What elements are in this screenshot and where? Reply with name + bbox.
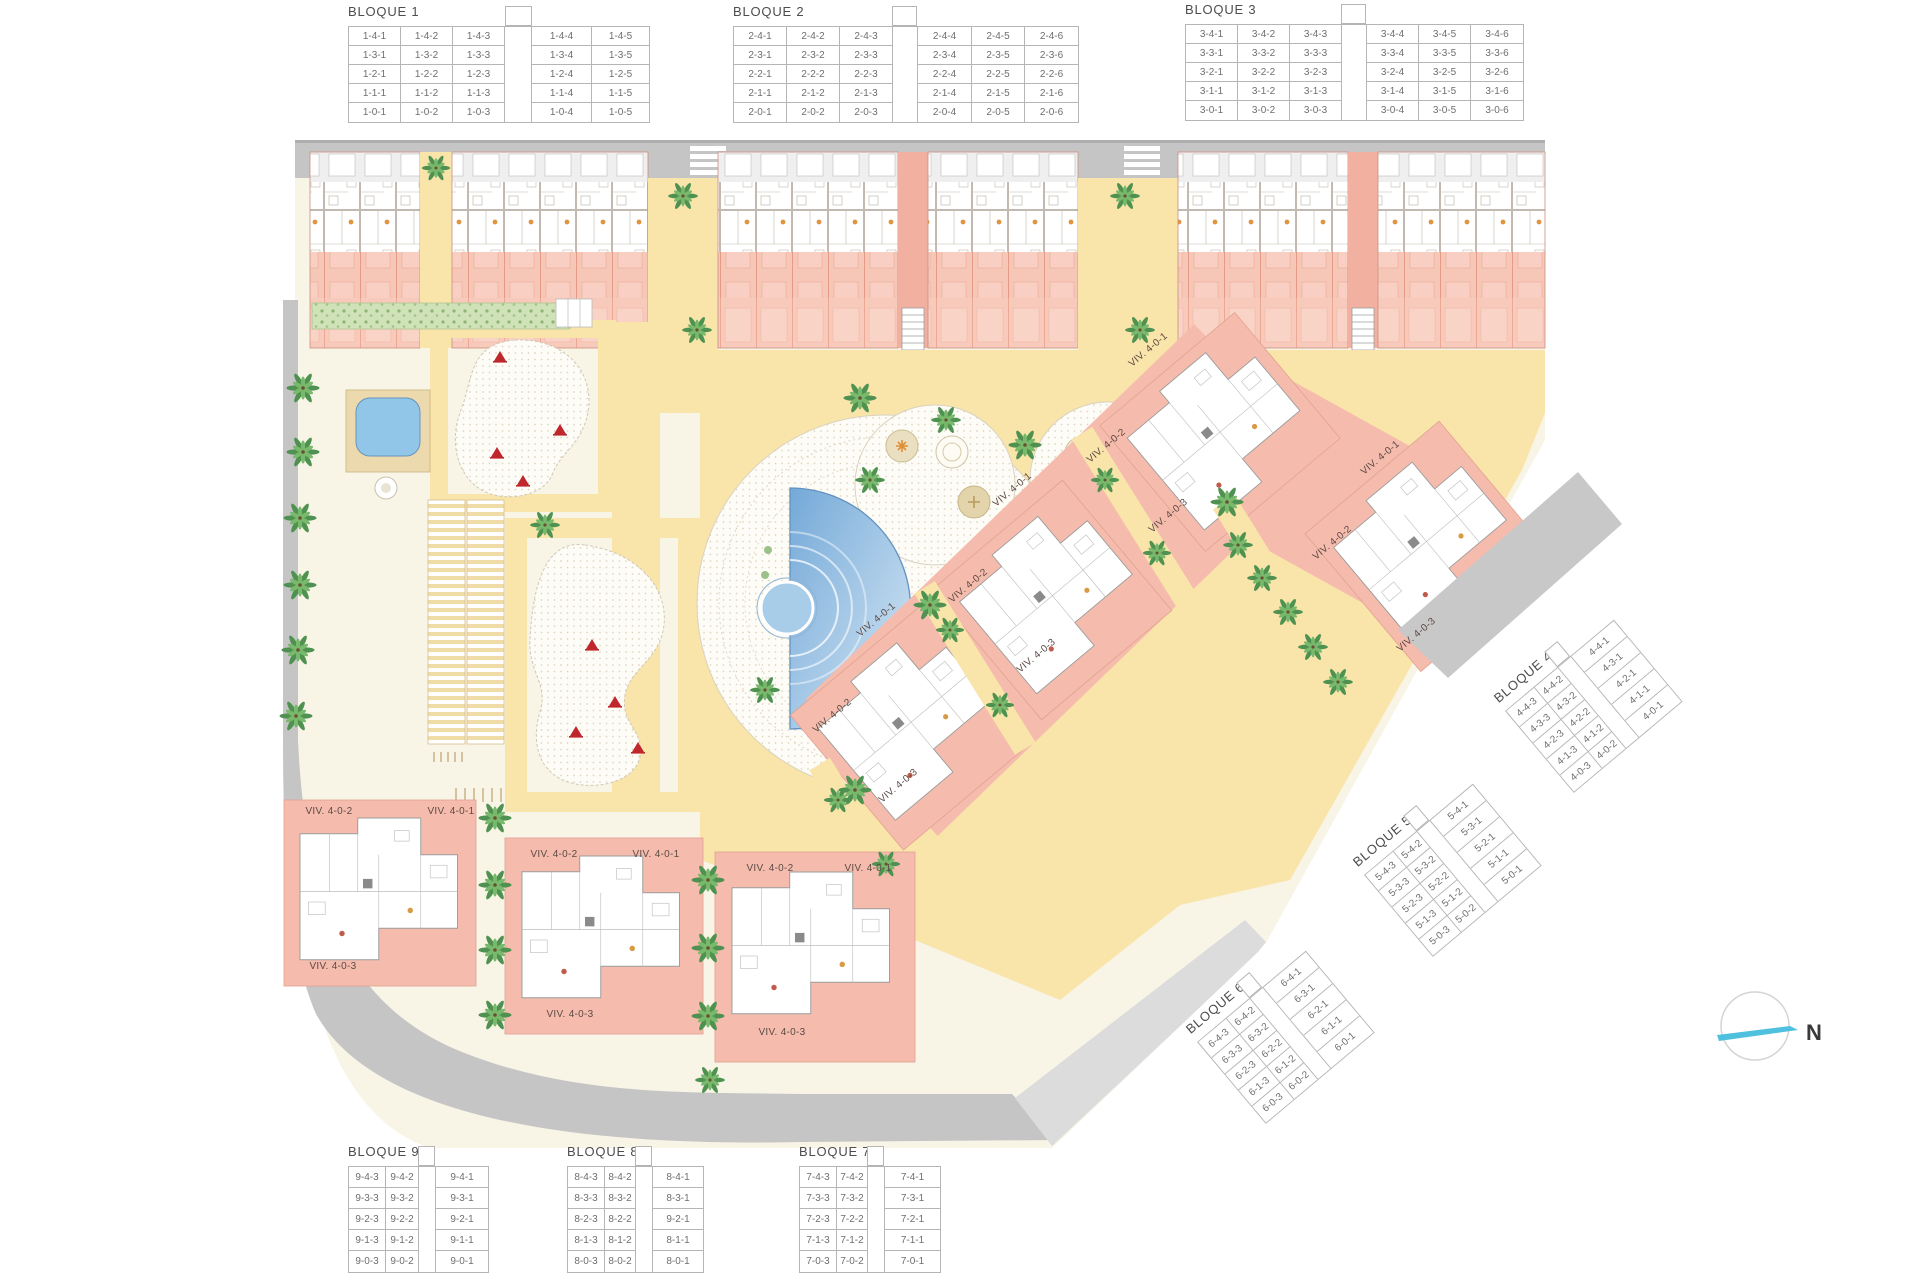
spacer-cell — [419, 1167, 436, 1188]
unit-cell: 2-0-3 — [840, 103, 893, 122]
unit-cell: 3-0-5 — [1419, 101, 1471, 120]
unit-cell: 1-4-5 — [592, 27, 649, 46]
spacer-cell — [505, 27, 532, 46]
unit-cell: 7-4-2 — [837, 1167, 868, 1188]
pergola — [467, 500, 504, 744]
unit-cell: 1-1-2 — [401, 84, 453, 103]
unit-cell: 9-4-1 — [436, 1167, 488, 1188]
unit-cell: 2-0-5 — [972, 103, 1025, 122]
unit-cell: 8-4-2 — [605, 1167, 636, 1188]
unit-cell: 9-0-2 — [386, 1251, 419, 1272]
unit-cell: 3-0-4 — [1367, 101, 1419, 120]
unit-cell: 3-4-2 — [1238, 25, 1290, 44]
unit-cell: 1-2-2 — [401, 65, 453, 84]
unit-cell: 3-3-4 — [1367, 44, 1419, 63]
unit-cell: 8-3-2 — [605, 1188, 636, 1209]
unit-cell: 7-0-2 — [837, 1251, 868, 1272]
bloque-1-table: BLOQUE 1 1-4-11-4-21-4-31-4-41-4-51-3-11… — [348, 4, 650, 123]
bloque-7-table: BLOQUE 7 7-4-37-4-27-4-17-3-37-3-27-3-17… — [799, 1144, 941, 1273]
table-annex-box — [892, 6, 917, 26]
unit-cell: 2-1-5 — [972, 84, 1025, 103]
table-annex-box — [418, 1146, 435, 1166]
unit-cell: 3-3-2 — [1238, 44, 1290, 63]
unit-cell: 2-1-1 — [734, 84, 787, 103]
unit-cell: 8-2-3 — [568, 1209, 605, 1230]
table-annex-box — [635, 1146, 652, 1166]
unit-cell: 3-3-3 — [1290, 44, 1342, 63]
unit-cell: 9-3-2 — [386, 1188, 419, 1209]
unit-cell: 1-0-5 — [592, 103, 649, 122]
spacer-cell — [1342, 44, 1367, 63]
unit-cell: 2-3-6 — [1025, 46, 1078, 65]
spacer-cell — [505, 103, 532, 122]
unit-cell: 3-4-1 — [1186, 25, 1238, 44]
unit-cell: 1-0-3 — [453, 103, 505, 122]
unit-cell: 2-0-6 — [1025, 103, 1078, 122]
unit-cell: 9-1-1 — [436, 1230, 488, 1251]
unit-cell: 1-1-1 — [349, 84, 401, 103]
unit-cell: 1-3-4 — [532, 46, 592, 65]
viv-label: VIV. 4-0-1 — [632, 849, 679, 860]
unit-cell: 8-1-3 — [568, 1230, 605, 1251]
spacer-cell — [868, 1188, 885, 1209]
viv-label: VIV. 4-0-2 — [305, 806, 352, 817]
spacer-cell — [419, 1251, 436, 1272]
unit-grid: 3-4-13-4-23-4-33-4-43-4-53-4-63-3-13-3-2… — [1185, 24, 1524, 121]
unit-cell: 8-0-2 — [605, 1251, 636, 1272]
site-plan-svg: VIV. 4-0-2 VIV. 4-0-1 VIV. 4-0-3 VIV. 4-… — [0, 0, 1920, 1280]
viv-label: VIV. 4-0-3 — [546, 1009, 593, 1020]
unit-grid: 9-4-39-4-29-4-19-3-39-3-29-3-19-2-39-2-2… — [348, 1166, 489, 1273]
unit-cell: 2-4-6 — [1025, 27, 1078, 46]
unit-cell: 8-0-1 — [653, 1251, 703, 1272]
spacer-cell — [868, 1251, 885, 1272]
unit-cell: 2-4-4 — [918, 27, 972, 46]
spacer-cell — [419, 1230, 436, 1251]
spacer-cell — [1342, 82, 1367, 101]
unit-grid: 7-4-37-4-27-4-17-3-37-3-27-3-17-2-37-2-2… — [799, 1166, 941, 1273]
unit-cell: 7-4-1 — [885, 1167, 940, 1188]
unit-cell: 9-0-1 — [436, 1251, 488, 1272]
unit-cell: 9-2-3 — [349, 1209, 386, 1230]
unit-cell: 2-1-3 — [840, 84, 893, 103]
unit-cell: 2-3-4 — [918, 46, 972, 65]
apartment-cluster — [284, 800, 476, 986]
unit-cell: 1-0-2 — [401, 103, 453, 122]
unit-cell: 2-3-3 — [840, 46, 893, 65]
table-circle — [936, 436, 968, 468]
unit-cell: 7-2-2 — [837, 1209, 868, 1230]
unit-cell: 3-1-5 — [1419, 82, 1471, 101]
unit-cell: 2-4-3 — [840, 27, 893, 46]
unit-cell: 9-1-2 — [386, 1230, 419, 1251]
unit-cell: 2-3-2 — [787, 46, 840, 65]
jacuzzi — [761, 582, 813, 634]
spacer-cell — [1342, 25, 1367, 44]
unit-cell: 2-2-5 — [972, 65, 1025, 84]
unit-cell: 1-1-3 — [453, 84, 505, 103]
bloque-3-table: BLOQUE 3 3-4-13-4-23-4-33-4-43-4-53-4-63… — [1185, 2, 1524, 121]
unit-cell: 1-4-1 — [349, 27, 401, 46]
spacer-cell — [893, 103, 918, 122]
unit-cell: 9-4-2 — [386, 1167, 419, 1188]
unit-cell: 9-2-2 — [386, 1209, 419, 1230]
unit-cell: 1-0-4 — [532, 103, 592, 122]
unit-cell: 2-2-2 — [787, 65, 840, 84]
unit-cell: 9-2-1 — [653, 1209, 703, 1230]
viv-label: VIV. 4-0-3 — [758, 1027, 805, 1038]
unit-cell: 1-3-2 — [401, 46, 453, 65]
unit-cell: 8-1-1 — [653, 1230, 703, 1251]
viv-label: VIV. 4-0-1 — [844, 863, 891, 874]
table-annex-box — [1341, 4, 1366, 24]
spacer-cell — [636, 1251, 653, 1272]
compass-circle — [1721, 992, 1789, 1060]
spacer-cell — [893, 46, 918, 65]
unit-cell: 1-3-3 — [453, 46, 505, 65]
unit-cell: 2-1-2 — [787, 84, 840, 103]
unit-cell: 9-3-3 — [349, 1188, 386, 1209]
unit-cell: 3-4-4 — [1367, 25, 1419, 44]
site-plan-page: { "blocks": [ {"title":"BLOQUE 1","rows"… — [0, 0, 1920, 1280]
unit-cell: 2-4-1 — [734, 27, 787, 46]
unit-cell: 1-1-5 — [592, 84, 649, 103]
unit-cell: 3-2-2 — [1238, 63, 1290, 82]
pool-plant-room — [556, 299, 592, 327]
unit-cell: 8-0-3 — [568, 1251, 605, 1272]
unit-cell: 2-0-1 — [734, 103, 787, 122]
unit-cell: 3-2-5 — [1419, 63, 1471, 82]
viv-label: VIV. 4-0-1 — [427, 806, 474, 817]
unit-cell: 3-2-3 — [1290, 63, 1342, 82]
unit-cell: 9-3-1 — [436, 1188, 488, 1209]
unit-cell: 2-2-6 — [1025, 65, 1078, 84]
unit-cell: 3-1-4 — [1367, 82, 1419, 101]
unit-cell: 2-4-2 — [787, 27, 840, 46]
unit-cell: 7-3-2 — [837, 1188, 868, 1209]
unit-cell: 2-0-4 — [918, 103, 972, 122]
unit-cell: 3-0-2 — [1238, 101, 1290, 120]
unit-cell: 1-3-1 — [349, 46, 401, 65]
unit-cell: 9-4-3 — [349, 1167, 386, 1188]
unit-cell: 3-3-1 — [1186, 44, 1238, 63]
hedge — [312, 303, 570, 329]
spacer-cell — [893, 84, 918, 103]
unit-cell: 1-2-4 — [532, 65, 592, 84]
pergola — [428, 500, 465, 744]
block-title: BLOQUE 1 — [348, 4, 650, 26]
unit-cell: 1-4-4 — [532, 27, 592, 46]
apartment-cluster — [715, 852, 915, 1062]
north-label: N — [1806, 1020, 1822, 1045]
unit-cell: 2-1-6 — [1025, 84, 1078, 103]
spacer-cell — [636, 1209, 653, 1230]
unit-cell: 7-4-3 — [800, 1167, 837, 1188]
unit-cell: 1-4-2 — [401, 27, 453, 46]
spacer-cell — [636, 1230, 653, 1251]
spacer-cell — [505, 65, 532, 84]
unit-cell: 3-1-6 — [1471, 82, 1523, 101]
unit-cell: 3-1-2 — [1238, 82, 1290, 101]
unit-grid: 1-4-11-4-21-4-31-4-41-4-51-3-11-3-21-3-3… — [348, 26, 650, 123]
unit-cell: 8-4-1 — [653, 1167, 703, 1188]
bloque-8-table: BLOQUE 8 8-4-38-4-28-4-18-3-38-3-28-3-18… — [567, 1144, 704, 1273]
spacer-cell — [868, 1167, 885, 1188]
unit-cell: 1-2-3 — [453, 65, 505, 84]
bloque-9-table: BLOQUE 9 9-4-39-4-29-4-19-3-39-3-29-3-19… — [348, 1144, 489, 1273]
unit-cell: 8-3-1 — [653, 1188, 703, 1209]
unit-cell: 2-2-4 — [918, 65, 972, 84]
spacer-cell — [419, 1188, 436, 1209]
table-annex-box — [505, 6, 532, 26]
unit-cell: 1-2-1 — [349, 65, 401, 84]
viv-label: VIV. 4-0-2 — [530, 849, 577, 860]
unit-cell: 9-0-3 — [349, 1251, 386, 1272]
unit-cell: 7-2-1 — [885, 1209, 940, 1230]
small-pool — [356, 398, 420, 456]
unit-cell: 3-0-1 — [1186, 101, 1238, 120]
spacer-cell — [636, 1167, 653, 1188]
unit-cell: 2-3-1 — [734, 46, 787, 65]
unit-cell: 1-1-4 — [532, 84, 592, 103]
unit-cell: 7-1-3 — [800, 1230, 837, 1251]
unit-cell: 3-0-3 — [1290, 101, 1342, 120]
unit-cell: 7-0-3 — [800, 1251, 837, 1272]
unit-cell: 1-3-5 — [592, 46, 649, 65]
unit-cell: 2-1-4 — [918, 84, 972, 103]
spacer-cell — [1342, 63, 1367, 82]
unit-cell: 2-2-3 — [840, 65, 893, 84]
unit-cell: 3-2-4 — [1367, 63, 1419, 82]
unit-cell: 7-0-1 — [885, 1251, 940, 1272]
unit-grid: 2-4-12-4-22-4-32-4-42-4-52-4-62-3-12-3-2… — [733, 26, 1079, 123]
bloque-2-table: BLOQUE 2 2-4-12-4-22-4-32-4-42-4-52-4-62… — [733, 4, 1079, 123]
unit-cell: 8-1-2 — [605, 1230, 636, 1251]
unit-cell: 3-4-5 — [1419, 25, 1471, 44]
unit-grid: 8-4-38-4-28-4-18-3-38-3-28-3-18-2-38-2-2… — [567, 1166, 704, 1273]
spacer-cell — [636, 1188, 653, 1209]
unit-cell: 8-3-3 — [568, 1188, 605, 1209]
unit-cell: 1-0-1 — [349, 103, 401, 122]
unit-cell: 3-4-6 — [1471, 25, 1523, 44]
spacer-cell — [505, 46, 532, 65]
spacer-cell — [419, 1209, 436, 1230]
unit-cell: 2-3-5 — [972, 46, 1025, 65]
unit-cell: 3-0-6 — [1471, 101, 1523, 120]
apartment-cluster — [505, 838, 703, 1034]
unit-cell: 9-2-1 — [436, 1209, 488, 1230]
table-annex-box — [867, 1146, 884, 1166]
unit-cell: 7-3-3 — [800, 1188, 837, 1209]
spacer-cell — [893, 27, 918, 46]
unit-cell: 3-3-6 — [1471, 44, 1523, 63]
unit-cell: 7-2-3 — [800, 1209, 837, 1230]
unit-cell: 3-1-3 — [1290, 82, 1342, 101]
unit-cell: 7-1-1 — [885, 1230, 940, 1251]
unit-cell: 8-4-3 — [568, 1167, 605, 1188]
unit-cell: 7-3-1 — [885, 1188, 940, 1209]
unit-cell: 1-4-3 — [453, 27, 505, 46]
unit-cell: 2-2-1 — [734, 65, 787, 84]
spacer-cell — [868, 1209, 885, 1230]
unit-cell: 9-1-3 — [349, 1230, 386, 1251]
spacer-cell — [1342, 101, 1367, 120]
spacer-cell — [868, 1230, 885, 1251]
unit-cell: 2-4-5 — [972, 27, 1025, 46]
unit-cell: 3-2-6 — [1471, 63, 1523, 82]
spacer-cell — [505, 84, 532, 103]
unit-cell: 3-3-5 — [1419, 44, 1471, 63]
viv-label: VIV. 4-0-3 — [309, 961, 356, 972]
unit-cell: 7-1-2 — [837, 1230, 868, 1251]
unit-cell: 3-2-1 — [1186, 63, 1238, 82]
unit-cell: 1-2-5 — [592, 65, 649, 84]
unit-cell: 2-0-2 — [787, 103, 840, 122]
spacer-cell — [893, 65, 918, 84]
unit-cell: 3-1-1 — [1186, 82, 1238, 101]
viv-label: VIV. 4-0-2 — [746, 863, 793, 874]
unit-cell: 8-2-2 — [605, 1209, 636, 1230]
unit-cell: 3-4-3 — [1290, 25, 1342, 44]
townhouse-group-2 — [718, 152, 1078, 354]
